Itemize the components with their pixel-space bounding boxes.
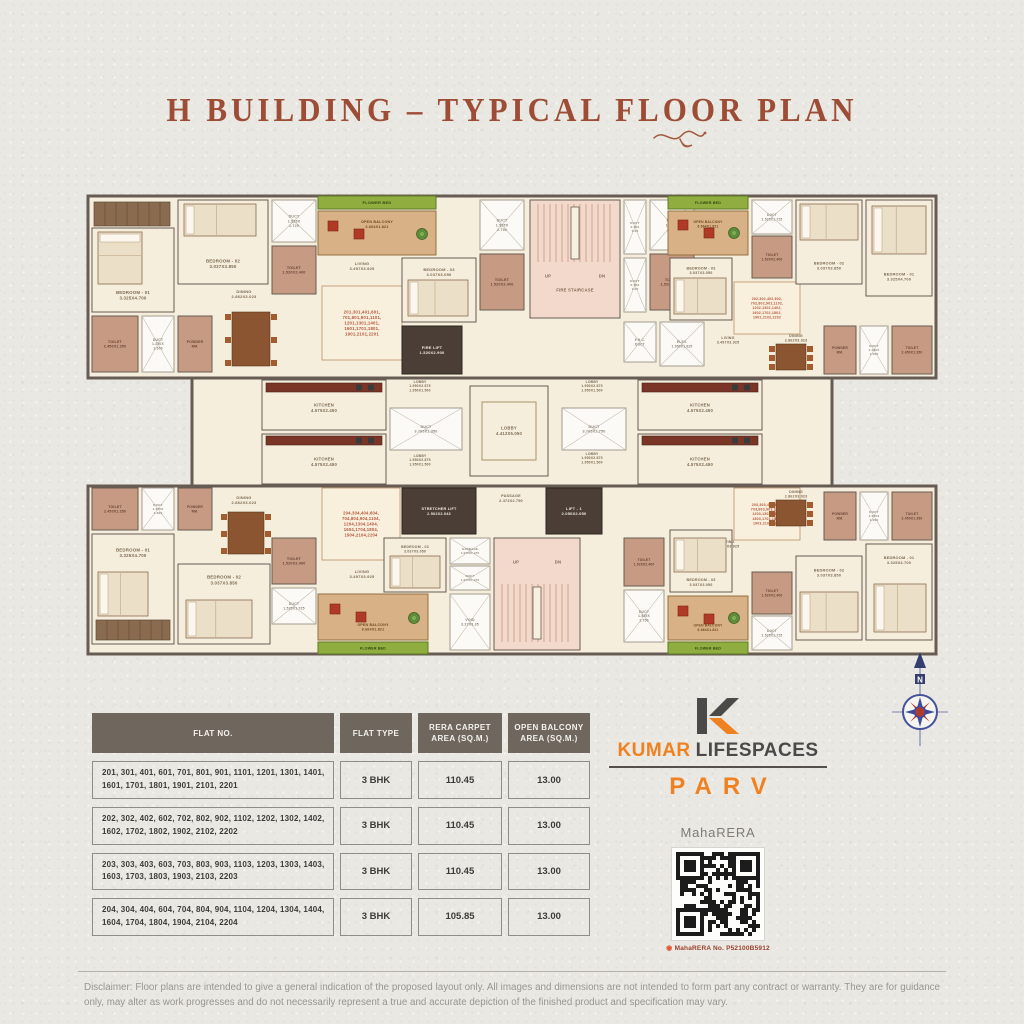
plan-label: KITCHEN xyxy=(314,457,334,462)
col-balcony-area: OPEN BALCONY AREA (SQ.M.) xyxy=(508,713,590,753)
flat-numbers: 202, 302, 402, 602, 702, 802, 902, 1102,… xyxy=(92,807,334,845)
plan-label: FLOWER BED xyxy=(363,200,392,205)
plan-label: 1602,1702,1802, xyxy=(752,311,781,315)
plan-label: BEDROOM - 02 xyxy=(207,575,241,580)
deco-table xyxy=(221,512,271,554)
qr-code xyxy=(672,848,764,940)
plan-label: RM. xyxy=(837,350,844,354)
plan-label: 2.450X1.350 xyxy=(104,510,126,514)
plan-label: TOILET xyxy=(287,557,302,561)
plan-label: BEDROOM - 01 xyxy=(116,547,150,552)
compass-north-label: N xyxy=(917,676,923,685)
plan-label: 3.037X3.050 xyxy=(427,272,452,277)
plan-label: 1.00 xyxy=(632,229,639,233)
plan-label: 3.497X3.925 xyxy=(350,266,375,271)
plan-label: 1.000 xyxy=(870,518,879,522)
flat-type: 3 BHK xyxy=(340,853,412,891)
room-toilet-stair-u1: TOILET1.520X2.400 xyxy=(480,254,524,310)
plan-label: 1.520X2.400 xyxy=(634,562,655,566)
table-row: 202, 302, 402, 602, 702, 802, 902, 1102,… xyxy=(92,807,590,845)
plan-label: 1604,1704,1804, xyxy=(344,527,378,532)
plan-label: BEDROOM - 03 xyxy=(686,266,715,270)
room-flat-box-u2: 202,302,402,602,702,802,902,1102,1202,13… xyxy=(734,282,800,334)
plan-label: DUCT xyxy=(420,425,432,429)
plan-label: 1.950X1.825 xyxy=(672,344,693,348)
room-duct-u1: DUCT1.220X1.500 xyxy=(142,316,174,372)
deco-bed xyxy=(408,280,468,316)
flat-type: 3 BHK xyxy=(340,761,412,799)
project-name: PARV xyxy=(598,773,838,801)
plan-label: 3.037X3.850 xyxy=(817,573,841,578)
room-toilet-common-u4: TOILET1.520X2.400 xyxy=(272,538,316,584)
deco-bed xyxy=(98,572,148,616)
plan-label: 1.525X xyxy=(638,614,650,618)
plan-label: BEDROOM - 02 xyxy=(206,259,240,264)
balcony-area: 13.00 xyxy=(508,807,590,845)
deco-bed xyxy=(800,204,858,240)
room-duct-stair-u3: DUCT1.525X1.750 xyxy=(624,590,664,642)
plan-label: 1.750 xyxy=(639,619,649,623)
flat-numbers: 203, 303, 403, 603, 703, 803, 903, 1103,… xyxy=(92,853,334,891)
plan-label: 1601,1701,1801, xyxy=(344,326,379,331)
room-duct-corner-u2: DUCT1.525X1.725 xyxy=(752,200,792,234)
plan-label: 1.520X2.400 xyxy=(762,257,783,261)
plan-label: FLOWER BED xyxy=(695,201,721,205)
plan-label: 1.520X2.400 xyxy=(762,593,783,597)
plan-label: 6.664X1.821 xyxy=(365,225,388,229)
room-toilet-master-u4: TOILET2.450X1.350 xyxy=(92,488,138,530)
plan-label: 3.325X4.700 xyxy=(119,553,146,558)
plan-label: DINING xyxy=(789,490,803,494)
room-toilet-master-u3: TOILET2.450X1.350 xyxy=(892,492,932,540)
deco-ct xyxy=(642,383,758,392)
table-header-row: FLAT NO. FLAT TYPE RERA CARPET AREA (SQ.… xyxy=(92,713,590,753)
plan-label: 204,304,404,604, xyxy=(343,511,379,516)
plan-label: 1.500 xyxy=(870,352,879,356)
room-flat-box-u1: 201,301,401,601,701,801,901,1101,1201,13… xyxy=(322,286,402,360)
plan-label: 702,802,902,1102, xyxy=(751,302,783,306)
balcony-area: 13.00 xyxy=(508,853,590,891)
label-dn-top: DN xyxy=(599,273,605,278)
plan-label: 1.525X1.725 xyxy=(283,606,304,610)
deco-bed xyxy=(184,204,256,236)
room-flower-bed-u2: FLOWER BED xyxy=(668,196,748,209)
plan-label: KITCHEN xyxy=(690,403,710,408)
plan-label: LIVING xyxy=(721,336,734,340)
plan-label: TOILET xyxy=(287,266,302,270)
plan-label: 3.325X4.700 xyxy=(887,277,911,282)
carpet-area: 110.45 xyxy=(418,761,502,799)
room-powder-rm-u4: POWDERRM. xyxy=(178,488,212,530)
plan-label: 6.664X1.821 xyxy=(362,628,385,632)
flat-numbers: 201, 301, 401, 601, 701, 801, 901, 1101,… xyxy=(92,761,334,799)
plan-label: BEDROOM - 03 xyxy=(686,578,715,582)
room-flower-bed-u3: FLOWER BED xyxy=(668,642,748,654)
plan-label: 1.525X xyxy=(288,219,301,223)
disclaimer-line-1: Disclaimer: Floor plans are intended to … xyxy=(84,982,842,993)
plan-label: 3.27X3.35 xyxy=(461,623,479,627)
deco-bed xyxy=(800,592,858,632)
plan-label: VOID xyxy=(465,618,475,622)
col-carpet-area: RERA CARPET AREA (SQ.M.) xyxy=(418,713,502,753)
plan-label: 4.575X2.450 xyxy=(311,462,337,467)
plan-label: UP xyxy=(545,273,551,278)
plan-label: 1.520X2.400 xyxy=(490,283,513,287)
room-flower-bed-u1: FLOWER BED xyxy=(318,196,436,209)
balcony-area: 13.00 xyxy=(508,898,590,936)
room-fire-lift: FIRE LIFT1.520X2.900 xyxy=(402,326,462,374)
plan-label: POWDER xyxy=(187,340,204,344)
plan-label: 704,804,904,1104, xyxy=(342,516,380,521)
plan-label: OPEN BALCONY xyxy=(361,220,393,224)
area-table: FLAT NO. FLAT TYPE RERA CARPET AREA (SQ.… xyxy=(86,705,596,944)
deco-bed xyxy=(390,556,440,588)
plan-label: 3.765X1.350 xyxy=(414,430,437,434)
plan-label: LOBBY xyxy=(414,380,427,384)
plan-label: 2.862X3.023 xyxy=(785,495,808,499)
plan-label: 1.950X1.500 xyxy=(409,389,430,393)
plan-label: STRETCHER LIFT xyxy=(421,507,457,511)
room-toilet-common-u2: TOILET1.520X2.400 xyxy=(752,236,792,278)
plan-label: OPEN BALCONY xyxy=(357,623,389,627)
label-up-top: UP xyxy=(545,273,551,278)
room-duct-stair-u1: DUCT1.525X2.750 xyxy=(480,200,524,250)
plan-label: TOILET xyxy=(495,278,510,282)
room-duct-garbage: DUCT1.275X1.475 xyxy=(450,566,490,590)
plan-label: FLOWER BED xyxy=(695,646,721,650)
footer-divider xyxy=(78,971,946,972)
room-duct-small-1: DUCT0.76X1.00 xyxy=(624,200,646,254)
plan-label: 2.862X3.023 xyxy=(785,339,808,343)
deco-wr xyxy=(94,202,170,226)
room-stretcher-lift: STRETCHER LIFT2.502X2.043 xyxy=(402,488,476,534)
plan-label: 1.520X2.900 xyxy=(420,350,445,355)
room-duct-lobby-left: DUCT3.765X1.350 xyxy=(390,408,462,450)
deco-ct xyxy=(266,436,382,445)
flat-numbers: 204, 304, 404, 604, 704, 804, 904, 1104,… xyxy=(92,898,334,936)
plan-label: LOBBY xyxy=(414,454,427,458)
plan-label: 3.497X3.925 xyxy=(350,574,375,579)
plan-label: 4.575X2.450 xyxy=(687,462,713,467)
plan-label: 1.000 xyxy=(154,511,163,515)
plan-label: DUCT xyxy=(289,215,300,219)
plan-label: 1.525X1.725 xyxy=(762,633,783,637)
room-flower-bed-u4: FLOWER BED xyxy=(318,642,428,654)
plan-label: 4.412X5.050 xyxy=(496,431,522,436)
plan-label: 6.664X1.821 xyxy=(698,628,719,632)
plan-label: 1901,2101,2201 xyxy=(345,332,379,337)
plan-label: KITCHEN xyxy=(314,403,334,408)
room-toilet-master-u2: TOILET2.450X1.350 xyxy=(892,326,932,374)
floor-plan: BEDROOM - 013.325X4.700TOILET2.450X1.350… xyxy=(84,186,940,664)
plan-label: 1.220X xyxy=(152,342,164,346)
label-up-bottom: UP xyxy=(513,559,519,564)
room-garbage-duct: GARBAGE1.275X1.475 xyxy=(450,538,490,564)
plan-label: 3.497X3.925 xyxy=(717,341,740,345)
flat-type: 3 BHK xyxy=(340,807,412,845)
col-flat-no: FLAT NO. xyxy=(92,713,334,753)
plan-label: 1.525X1.725 xyxy=(762,217,783,221)
plan-label: BEDROOM - 01 xyxy=(116,290,150,295)
brand-divider xyxy=(609,766,827,768)
plan-label: 1.950X2.875 xyxy=(581,384,602,388)
plan-label: FLOWER BED xyxy=(360,646,386,650)
plan-label: 3.037X3.050 xyxy=(404,549,426,553)
deco-bed xyxy=(874,584,926,632)
plan-label: 3.037X3.050 xyxy=(689,583,712,587)
room-duct-lobby-right: DUCT3.765X1.750 xyxy=(562,408,626,450)
plan-label: 1.00 xyxy=(632,287,639,291)
plan-label: 1.520X2.400 xyxy=(282,271,305,275)
plan-label: DUCT xyxy=(289,602,300,606)
plan-label: 1904,2104,2204 xyxy=(344,532,378,537)
room-void: VOID3.27X3.35 xyxy=(450,594,490,650)
deco-ct xyxy=(266,383,382,392)
kumar-logo-icon xyxy=(695,696,741,736)
plan-label: 2.502X2.043 xyxy=(427,512,451,516)
plan-label: 3.765X1.750 xyxy=(582,430,605,434)
room-toilet-common-u3: TOILET1.520X2.400 xyxy=(752,572,792,614)
plan-label: 1.950X1.500 xyxy=(581,389,602,393)
plan-label: 2.050X2.050 xyxy=(562,511,587,516)
plan-label: 3.037X3.850 xyxy=(210,580,237,585)
room-duct-u3: DUCT1.375X1.000 xyxy=(860,492,888,540)
deco-bed xyxy=(186,600,252,638)
plan-label: 3.037X3.850 xyxy=(209,264,236,269)
room-duct-corner-u4: DUCT1.525X1.725 xyxy=(272,588,316,624)
plan-label: RM. xyxy=(192,344,199,348)
label-passage-label: PASSAGE2.472X2.750 xyxy=(499,494,523,503)
room-toilet-common-u1: TOILET1.520X2.400 xyxy=(272,246,316,294)
plan-label: LOBBY xyxy=(586,380,599,384)
deco-wr xyxy=(96,620,170,640)
rera-number: ◉ MahaRERA No. P52100B5912 xyxy=(598,944,838,952)
brand-lifespaces: LIFESPACES xyxy=(696,740,819,761)
flat-type: 3 BHK xyxy=(340,898,412,936)
disclaimer: Disclaimer: Floor plans are intended to … xyxy=(84,980,940,1010)
plan-label: 2.862X3.023 xyxy=(232,294,257,299)
room-toilet-master-u1: TOILET2.450X1.350 xyxy=(92,316,138,372)
plan-label: 3.325X4.700 xyxy=(119,296,146,301)
plan-label: LOBBY xyxy=(501,426,517,431)
deco-bed xyxy=(674,538,726,572)
plan-label: 1902,2102,2202 xyxy=(753,315,781,319)
plan-label: DUCT xyxy=(635,342,645,346)
brand-name: KUMARLIFESPACES xyxy=(598,740,838,762)
plan-label: 1.950X1.500 xyxy=(409,463,430,467)
plan-label: DUCT xyxy=(639,610,650,614)
plan-label: 3.325X4.700 xyxy=(887,560,911,565)
deco-ct xyxy=(642,436,758,445)
brand-kumar: KUMAR xyxy=(617,740,690,761)
plan-label: 1.950X2.875 xyxy=(581,456,602,460)
plan-label: 1.520X2.400 xyxy=(282,562,305,566)
plan-label: 1.725 xyxy=(289,224,299,228)
carpet-area: 110.45 xyxy=(418,853,502,891)
plan-label: KITCHEN xyxy=(690,457,710,462)
plan-label: DINING xyxy=(789,334,803,338)
col-flat-type: FLAT TYPE xyxy=(340,713,412,753)
plan-label: 1204,1304,1404, xyxy=(344,521,378,526)
plan-label: 2.450X1.350 xyxy=(902,350,923,354)
plan-label: 1.950X2.875 xyxy=(409,458,430,462)
plan-label: DUCT xyxy=(153,338,164,342)
compass-icon: N xyxy=(884,650,956,754)
maharera-label: MahaRERA xyxy=(598,825,838,840)
plan-label: 1.500 xyxy=(153,347,163,351)
plan-label: 1.950X2.875 xyxy=(409,384,430,388)
plan-label: RM. xyxy=(837,516,844,520)
room-toilet-stair-u3: TOILET1.520X2.400 xyxy=(624,538,664,586)
plan-label: 2.450X1.350 xyxy=(902,516,923,520)
plan-label: DUCT xyxy=(497,219,508,223)
table-row: 201, 301, 401, 601, 701, 801, 901, 1101,… xyxy=(92,761,590,799)
plan-label: 4.575X2.450 xyxy=(311,408,337,413)
plan-label: TOILET xyxy=(108,340,123,344)
brand-block: KUMARLIFESPACES PARV MahaRERA ◉ MahaRERA… xyxy=(598,696,838,952)
room-fhc-duct: F.H.C.DUCT xyxy=(624,322,656,362)
room-powder-rm-u3: POWDERRM. xyxy=(824,492,856,540)
plan-label: 1201,1301,1401, xyxy=(344,321,379,326)
plan-label: TOILET xyxy=(108,505,122,509)
plan-label: 2.750 xyxy=(497,228,507,232)
plan-label: 3.037X3.050 xyxy=(689,271,712,275)
deco-bed xyxy=(98,232,142,284)
room-duct-small-2: DUCT0.76X1.00 xyxy=(624,258,646,312)
label-fire-staircase-label: FIRE STAIRCASE xyxy=(556,287,593,292)
plan-label: 1202,1302,1402, xyxy=(752,306,781,310)
plan-label: RM. xyxy=(192,509,199,513)
deco-table xyxy=(225,312,277,366)
plan-label: DN xyxy=(599,273,605,278)
title-flourish-icon xyxy=(650,126,710,156)
plan-label: 4.575X2.450 xyxy=(687,408,713,413)
label-dn-bottom: DN xyxy=(555,559,561,564)
table-row: 203, 303, 403, 603, 703, 803, 903, 1103,… xyxy=(92,853,590,891)
page-title: H BUILDING – TYPICAL FLOOR PLAN xyxy=(0,91,1024,130)
carpet-area: 110.45 xyxy=(418,807,502,845)
plan-label: 201,301,401,601, xyxy=(344,309,381,314)
plan-label: 3.037X3.850 xyxy=(817,265,841,270)
plan-label: DN xyxy=(555,559,561,564)
plan-label: 2.862X3.023 xyxy=(232,500,257,505)
deco-bed xyxy=(872,206,926,254)
room-duct-top-u1: DUCT1.525X1.725 xyxy=(272,200,316,242)
plan-label: 202,302,402,602, xyxy=(752,297,782,301)
room-duct-corner-u3: DUCT1.525X1.725 xyxy=(752,616,792,650)
plan-label: UP xyxy=(513,559,519,564)
plan-label: 701,801,901,1101, xyxy=(342,315,381,320)
plan-label: 2.472X2.750 xyxy=(499,499,523,503)
room-powder-rm-u1: POWDERRM. xyxy=(178,316,212,372)
table-row: 204, 304, 404, 604, 704, 804, 904, 1104,… xyxy=(92,898,590,936)
room-lift-1: LIFT - 12.050X2.050 xyxy=(546,488,602,534)
room-duct-u2: DUCT1.220X1.500 xyxy=(860,326,888,374)
plan-label: LOBBY xyxy=(586,452,599,456)
plan-label: DUCT xyxy=(588,425,600,429)
room-elev-duct: ELEV.1.950X1.825 xyxy=(660,322,704,366)
brochure-page: H BUILDING – TYPICAL FLOOR PLAN BEDROOM … xyxy=(0,0,1024,1024)
plan-label: BEDROOM - 03 xyxy=(401,545,429,549)
deco-bed xyxy=(674,278,726,314)
room-duct-u4: DUCT1.375X1.000 xyxy=(142,488,174,530)
plan-label: PASSAGE xyxy=(501,494,521,498)
plan-label: FIRE STAIRCASE xyxy=(556,287,593,292)
plan-label: 1.950X1.500 xyxy=(581,461,602,465)
plan-label: 1.275X1.475 xyxy=(461,551,480,555)
rera-bullet-icon: ◉ xyxy=(666,945,674,952)
plan-label: 2.450X1.350 xyxy=(104,345,127,349)
carpet-area: 105.85 xyxy=(418,898,502,936)
plan-label: 1.275X1.475 xyxy=(461,578,480,582)
qr-code-image xyxy=(672,848,764,940)
balcony-area: 13.00 xyxy=(508,761,590,799)
room-powder-rm-u2: POWDERRM. xyxy=(824,326,856,374)
plan-label: 1.525X xyxy=(496,223,509,227)
